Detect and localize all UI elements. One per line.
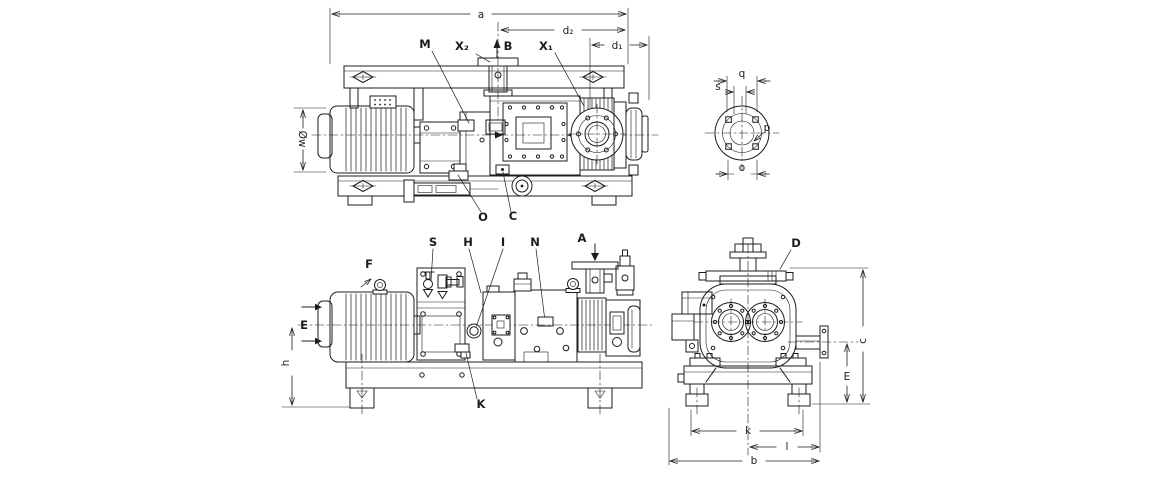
motor-top [318,96,414,173]
base-end [678,354,812,415]
dim-label-q: q [739,68,746,80]
dim-label-o: o [739,162,745,174]
nameplate [538,317,553,326]
dimension-q: q [714,68,770,112]
oil-box [616,266,634,290]
dimension-b: b [669,408,819,467]
inlet-pipe-front [572,250,634,295]
dim-label-d2: d₂ [563,25,574,37]
flow-arrow-b-icon [494,39,501,48]
callout-e: E [300,318,308,332]
oil-sight-glass [467,324,481,338]
dim-label-d1: d₁ [612,40,623,52]
funnel [438,292,447,299]
dimension-k: k [691,410,803,437]
baseplate-front [346,344,642,414]
dimension-d2: d₂ [501,25,625,37]
callout-o: O [478,210,488,224]
eyebolt [566,279,580,293]
dimension-s: s [715,81,754,114]
coupling-housing-top [414,122,460,173]
front-view-callouts: S H I N A K [429,231,599,411]
callout-d: D [791,236,801,250]
callout-h: H [463,235,473,249]
callout-p: p [764,122,771,134]
discharge-end-front [578,298,640,356]
callout-s: S [429,235,437,249]
dim-label-e: E [844,371,851,383]
callout-a: A [578,231,587,245]
top-piping [699,238,793,284]
gear-housing-front [467,286,515,360]
discharge-end-top [569,93,648,175]
flow-arrow-a-icon [591,253,599,261]
callout-i: I [501,235,505,249]
dim-label-l: l [786,441,789,453]
callout-x2: X₂ [455,39,469,53]
dimension-motor-diameter: Øw [294,108,326,172]
pump-body-top [490,96,580,175]
callout-d-group: D [780,236,801,269]
dimension-o: o [716,160,769,180]
motor-front [318,280,420,363]
dim-label-s: s [715,81,720,93]
oil-filler [514,279,531,291]
drain-elbow [455,344,469,352]
oil-sight-glass-top [512,176,532,196]
end-view: D [669,236,870,467]
callout-c: C [509,209,517,223]
cover-bolts [505,106,565,158]
funnel [424,290,433,298]
callout-k: K [477,397,487,411]
callout-x1: X₁ [539,39,553,53]
dim-label-k: k [745,425,752,437]
dim-label-motor-diameter: Øw [296,131,308,148]
eyebolt [373,280,387,295]
pump-dimensional-drawing: a d₂ d₁ Øw [0,0,1160,480]
callout-f: F [365,257,373,271]
connection-flange-detail: q s o p [705,68,779,180]
top-side-view: a d₂ d₁ Øw [294,8,658,224]
dim-label-c: c [857,338,869,344]
drawing-canvas: a d₂ d₁ Øw [0,0,1160,480]
callout-m: M [419,37,430,51]
cooling-air-label: E [300,304,322,345]
callout-b: B [504,39,513,53]
dim-label-a: a [478,9,484,21]
pump-body-front [514,273,580,362]
dim-label-b: b [751,455,758,467]
callout-n: N [530,235,540,249]
dimension-e: E [844,344,851,402]
callout-f-group: F [361,257,373,287]
dim-label-h: h [280,360,292,367]
front-side-view: h E F [280,231,654,414]
